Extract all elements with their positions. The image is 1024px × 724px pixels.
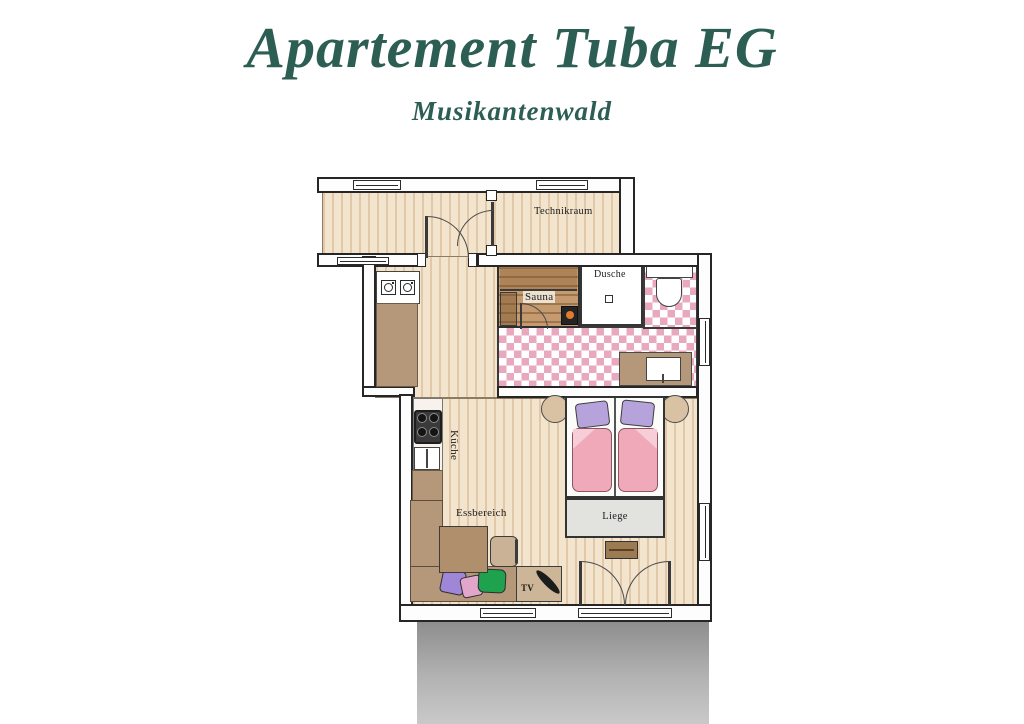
window-top-1 xyxy=(353,180,401,190)
window-corridor-left xyxy=(337,257,389,265)
window-bottom-1 xyxy=(480,608,536,618)
burner-icon xyxy=(417,427,427,437)
dryer-icon xyxy=(400,280,415,295)
bedside-table-right xyxy=(661,395,689,423)
vanity-tap-icon xyxy=(662,374,664,383)
window-right-bedroom xyxy=(699,503,710,561)
toilet-cistern xyxy=(646,266,693,278)
pillow-right xyxy=(620,399,655,427)
duvet-fold-icon xyxy=(635,429,657,449)
technikraum-door-frame-bottom xyxy=(486,245,497,256)
living-door-frame-right xyxy=(468,253,477,267)
burner-icon xyxy=(417,413,427,423)
page-title: Apartement Tuba EG xyxy=(0,8,1024,88)
shower-drain-icon xyxy=(605,295,613,303)
duvet-right xyxy=(618,428,658,492)
duvet-left xyxy=(572,428,612,492)
window-top-2 xyxy=(536,180,588,190)
bedroom-stool-line xyxy=(609,549,634,551)
window-bottom-2 xyxy=(578,608,672,618)
wall-technikraum-right xyxy=(619,177,635,262)
bed-center-divider xyxy=(614,398,616,496)
room-label-technikraum: Technikraum xyxy=(534,206,593,217)
page-subtitle: Musikantenwald xyxy=(0,96,1024,127)
washer-icon xyxy=(381,280,396,295)
sauna-bench-top xyxy=(500,268,577,291)
wall-right xyxy=(697,253,712,622)
technikraum-door-frame-top xyxy=(486,190,497,201)
room-label-sauna: Sauna xyxy=(523,291,555,303)
toilet-bowl xyxy=(656,278,682,307)
room-label-essbereich: Essbereich xyxy=(456,507,507,519)
room-label-kueche: Küche xyxy=(448,430,460,460)
burner-icon xyxy=(429,413,439,423)
kitchen-counter-upper xyxy=(376,303,418,387)
window-right-bath xyxy=(699,318,710,366)
sauna-heater-flame-icon xyxy=(566,311,574,319)
kitchen-sink-divider xyxy=(426,449,428,468)
dining-chair-back xyxy=(515,539,518,564)
pillow-left xyxy=(575,400,611,429)
plan-drop-shadow xyxy=(417,622,709,724)
dining-chair xyxy=(490,536,518,567)
tv-label: TV xyxy=(521,583,534,593)
floor-plan-page: Apartement Tuba EG Musikantenwald Sauna … xyxy=(0,0,1024,724)
wall-corridor-bottom-right xyxy=(477,253,712,267)
sauna-bench-left xyxy=(500,292,517,326)
wall-left-upper xyxy=(362,256,376,392)
burner-icon xyxy=(429,427,439,437)
kitchen-counter-bottom xyxy=(412,470,443,502)
liege-label: Liege xyxy=(565,511,665,522)
room-label-dusche: Dusche xyxy=(594,269,626,280)
duvet-fold-icon xyxy=(573,429,595,449)
dining-table xyxy=(439,526,488,573)
